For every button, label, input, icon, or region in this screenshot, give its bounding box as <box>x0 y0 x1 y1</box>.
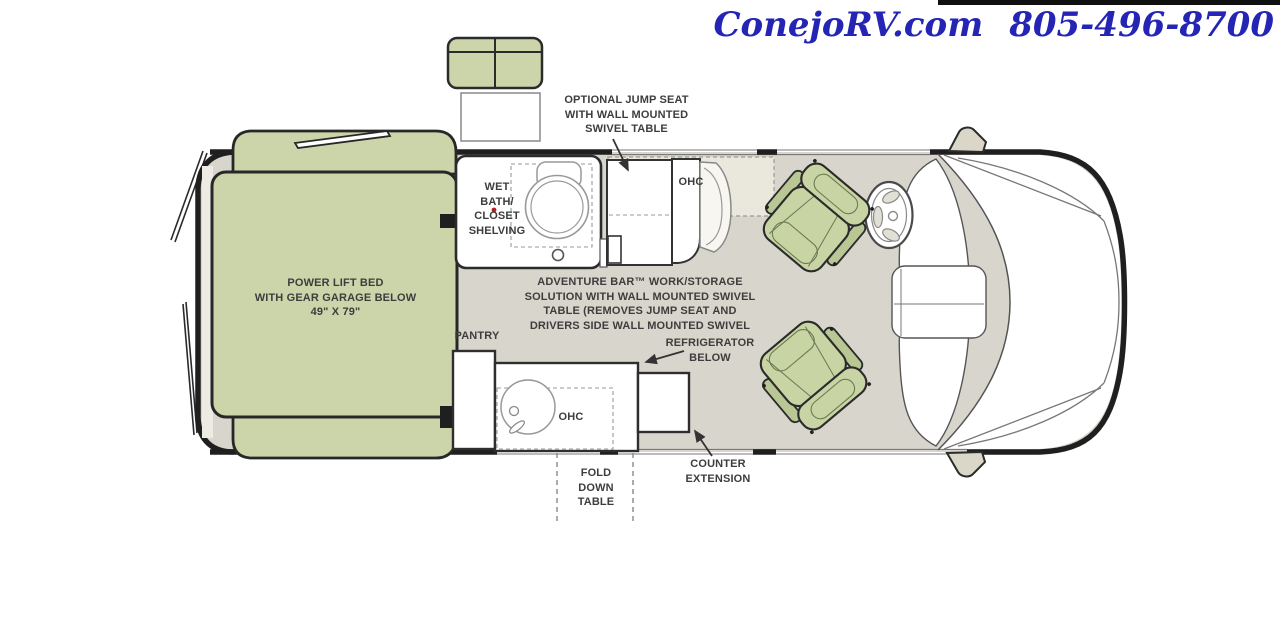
shower-drain-icon <box>553 250 564 261</box>
pantry-cabinet <box>453 351 495 449</box>
adventure-bar <box>607 159 731 265</box>
swivel-table-legend <box>461 93 540 141</box>
center-console <box>892 266 986 338</box>
steering-wheel-icon <box>866 182 913 248</box>
label-counter-extension: COUNTER EXTENSION <box>658 457 778 486</box>
label-pantry: PANTRY <box>447 329 507 344</box>
label-optional-jump-seat: OPTIONAL JUMP SEAT WITH WALL MOUNTED SWI… <box>544 93 709 137</box>
label-adventure-bar: ADVENTURE BAR™ WORK/STORAGE SOLUTION WIT… <box>485 275 795 333</box>
label-wet-bath: WET BATH/ CLOSET SHELVING <box>447 180 547 238</box>
label-power-lift-bed: POWER LIFT BED WITH GEAR GARAGE BELOW 49… <box>238 276 433 320</box>
label-ohc-galley: OHC <box>551 410 591 425</box>
sink-icon <box>501 380 555 435</box>
floorplan-canvas: ConejoRV.com805-496-8700 <box>0 0 1280 625</box>
counter-extension-box <box>638 373 689 432</box>
label-refrigerator: REFRIGERATOR BELOW <box>650 336 770 365</box>
jump-seat-icon <box>448 38 542 141</box>
label-ohc-adventure-bar: OHC <box>671 175 711 190</box>
label-fold-down-table: FOLD DOWN TABLE <box>566 466 626 510</box>
